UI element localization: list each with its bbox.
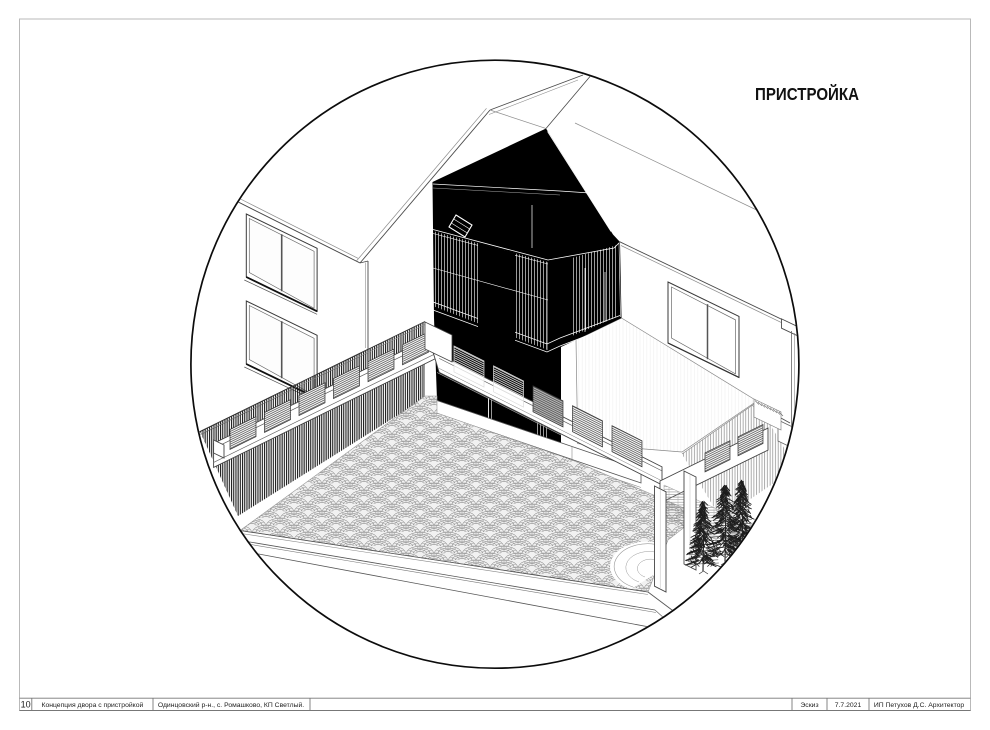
svg-text:Эскиз: Эскиз	[800, 702, 818, 709]
svg-text:ПРИСТРОЙКА: ПРИСТРОЙКА	[755, 83, 859, 104]
svg-text:ИП Петухов Д.С. Архитектор: ИП Петухов Д.С. Архитектор	[874, 702, 965, 709]
svg-text:Концепция двора с пристройкой: Концепция двора с пристройкой	[41, 701, 143, 709]
svg-text:7.7.2021: 7.7.2021	[835, 702, 862, 709]
svg-text:Одинцовский р-н., с. Ромашково: Одинцовский р-н., с. Ромашково, КП Светл…	[158, 701, 304, 709]
svg-text:10: 10	[21, 699, 31, 709]
